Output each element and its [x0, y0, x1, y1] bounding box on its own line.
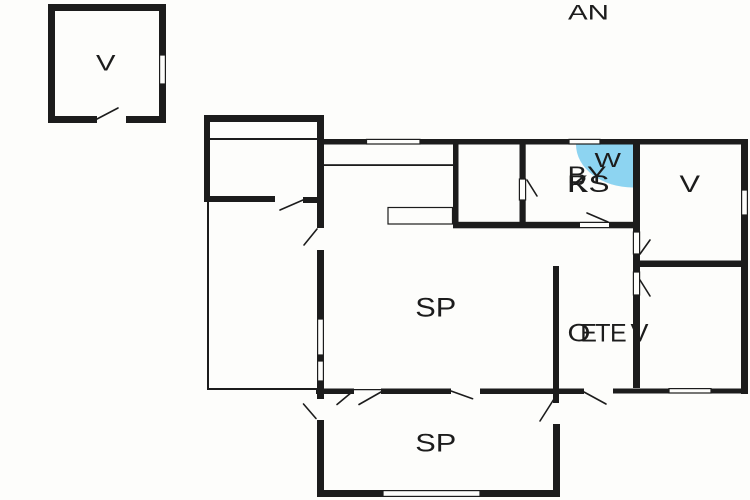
- svg-text:V: V: [680, 171, 701, 198]
- svg-text:E: E: [610, 320, 627, 348]
- svg-text:AN: AN: [568, 1, 609, 25]
- svg-text:SP: SP: [415, 429, 456, 457]
- svg-text:T: T: [595, 320, 610, 348]
- svg-text:V: V: [96, 51, 116, 76]
- svg-text:SP: SP: [415, 292, 456, 322]
- svg-text:V: V: [631, 320, 649, 348]
- svg-text:R: R: [568, 171, 587, 198]
